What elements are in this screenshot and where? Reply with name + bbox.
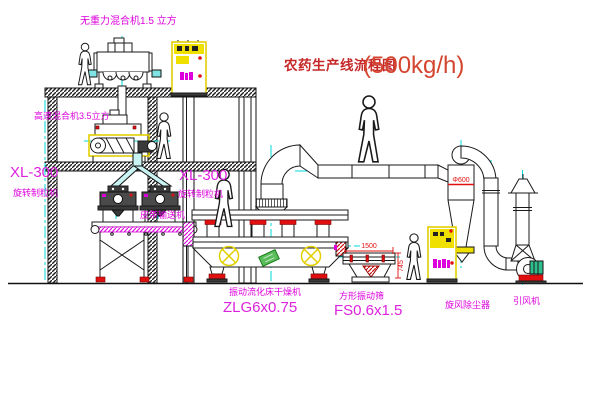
control-cabinet-2 <box>427 227 457 282</box>
sieve-name-label: 方形振动筛 <box>339 290 384 301</box>
granulator-mid-name-label: 旋转制粒机 <box>178 188 223 199</box>
fan-motor <box>530 261 543 274</box>
exhaust-duct <box>256 145 448 216</box>
fan-label: 引风机 <box>513 295 540 306</box>
granulator-left <box>98 186 138 222</box>
granulator-left-model-label: XL-300 <box>10 164 58 181</box>
sieve-model-label: FS0.6x1.5 <box>334 302 402 319</box>
dryer-inlet <box>183 222 194 246</box>
cyclone-label: 旋风除尘器 <box>445 299 490 310</box>
platform-beam-top <box>45 88 256 97</box>
cyclone-diameter-dimension: Φ600 <box>452 177 469 184</box>
diagram-canvas: 无重力混合机1.5 立方 农药生产线流程图 (500kg/h) 高速混合机3.5… <box>0 0 600 403</box>
exhaust-stack <box>508 174 538 261</box>
dryer-name-label: 振动流化床干燥机 <box>229 286 301 297</box>
induced-draft-fan <box>516 258 546 284</box>
sieve-height-dimension: 745 <box>398 260 405 272</box>
page-title-capacity: (500kg/h) <box>363 52 464 79</box>
process-flow-diagram: 无重力混合机1.5 立方 农药生产线流程图 (500kg/h) 高速混合机3.5… <box>0 0 600 403</box>
gravity-free-mixer-label: 无重力混合机1.5 立方 <box>80 14 177 27</box>
fluid-bed-dryer <box>183 210 348 282</box>
dryer-feet <box>207 267 329 282</box>
control-cabinet-1 <box>171 40 207 96</box>
granulator-left-name-label: 旋转制粒机 <box>13 187 58 198</box>
fan-base <box>519 275 543 281</box>
belt-conveyor <box>91 222 197 282</box>
high-speed-mixer-label: 高速混合机3.5立方 <box>34 110 110 121</box>
mixer-shaft-right <box>152 70 161 77</box>
worker-near-sieve <box>407 234 421 280</box>
dryer-stubs <box>205 220 331 237</box>
sieve-length-dimension: 1500 <box>361 243 377 250</box>
worker-mid-platform <box>157 113 171 159</box>
worker-top-platform <box>78 43 91 84</box>
worker-near-duct <box>359 96 379 162</box>
rain-cap <box>511 179 535 193</box>
dryer-model-label: ZLG6x0.75 <box>223 299 297 316</box>
belt-conveyor-label: 皮带输送机 <box>140 209 185 220</box>
duct-collar <box>256 199 287 207</box>
granulator-mid-model-label: XL-300 <box>179 167 227 184</box>
